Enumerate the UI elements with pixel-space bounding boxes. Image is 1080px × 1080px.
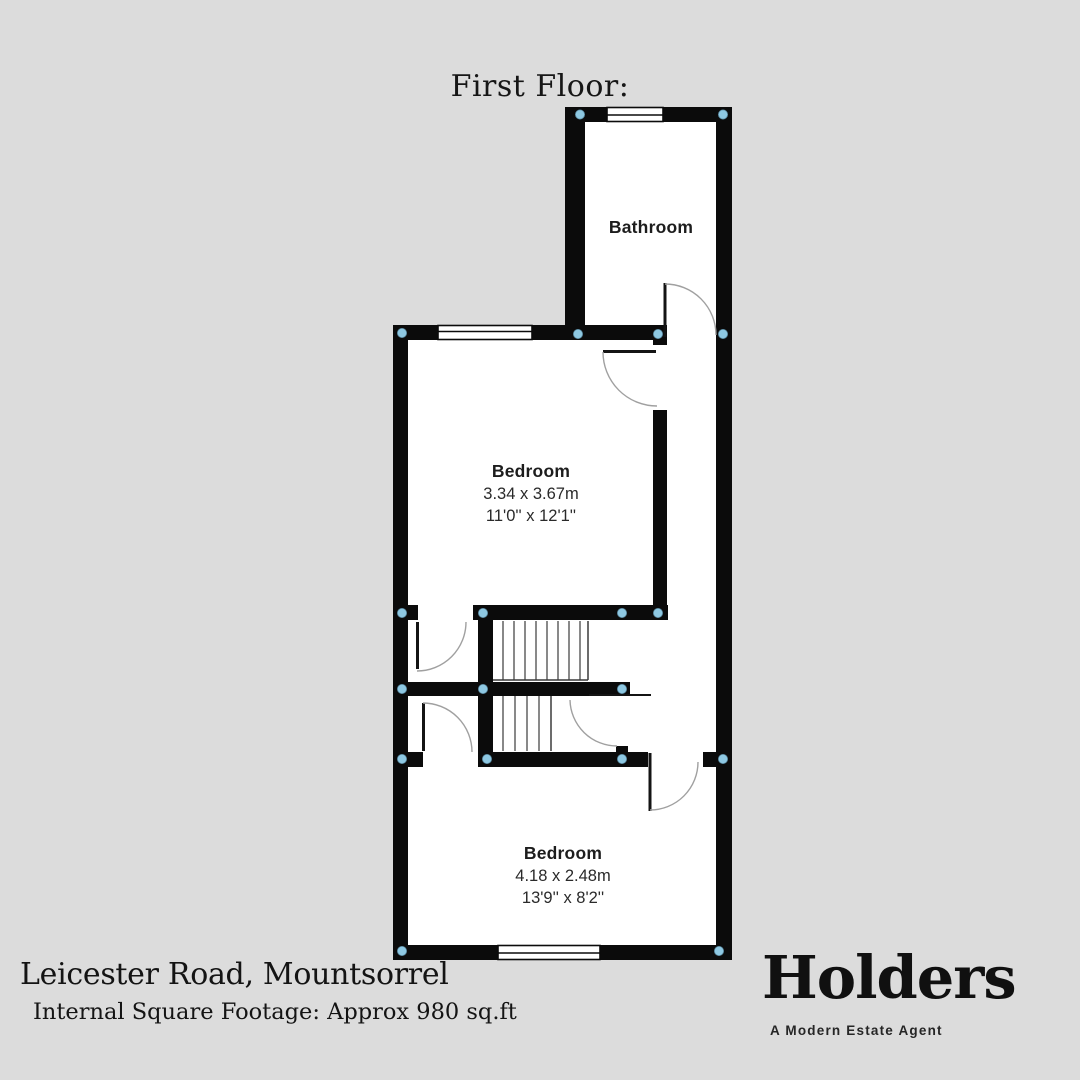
room-label-bedroom1: Bedroom 3.34 x 3.67m 11'0'' x 12'1'' [408,460,654,528]
floor-plan-drawing [0,0,1080,1080]
square-footage-note: Internal Square Footage: Approx 980 sq.f… [33,999,517,1025]
bedroom2-size-metric: 4.18 x 2.48m [408,865,718,888]
window-bathroom [607,108,663,122]
bedroom1-size-metric: 3.34 x 3.67m [408,483,654,506]
wall-stairs-middle [393,682,630,696]
bedroom1-name: Bedroom [408,460,654,483]
wall-doorframe-bump [616,746,628,752]
bedroom2-size-imperial: 13'9'' x 8'2'' [408,887,718,910]
page-title: First Floor: [0,69,1080,104]
brand-logo: Holders [762,947,1052,1009]
window-bedroom2 [498,946,600,960]
wall-exterior-right [716,107,732,960]
brand-tagline: A Modern Estate Agent [770,1023,943,1038]
wall-exterior-left [393,325,408,960]
bathroom-name: Bathroom [585,216,717,239]
window-bedroom1 [438,326,532,340]
wall-bedroom1-right [653,410,667,620]
bedroom2-name: Bedroom [408,842,718,865]
bedroom1-size-imperial: 11'0'' x 12'1'' [408,505,654,528]
floorplan-page: First Floor: Bathroom Bedroom 3.34 x 3.6… [0,0,1080,1080]
room-label-bathroom: Bathroom [585,216,717,239]
wall-bedroom1-bottom [473,605,668,620]
room-label-bedroom2: Bedroom 4.18 x 2.48m 13'9'' x 8'2'' [408,842,718,910]
property-address: Leicester Road, Mountsorrel [20,957,449,992]
wall-bathroom-left [565,107,585,340]
